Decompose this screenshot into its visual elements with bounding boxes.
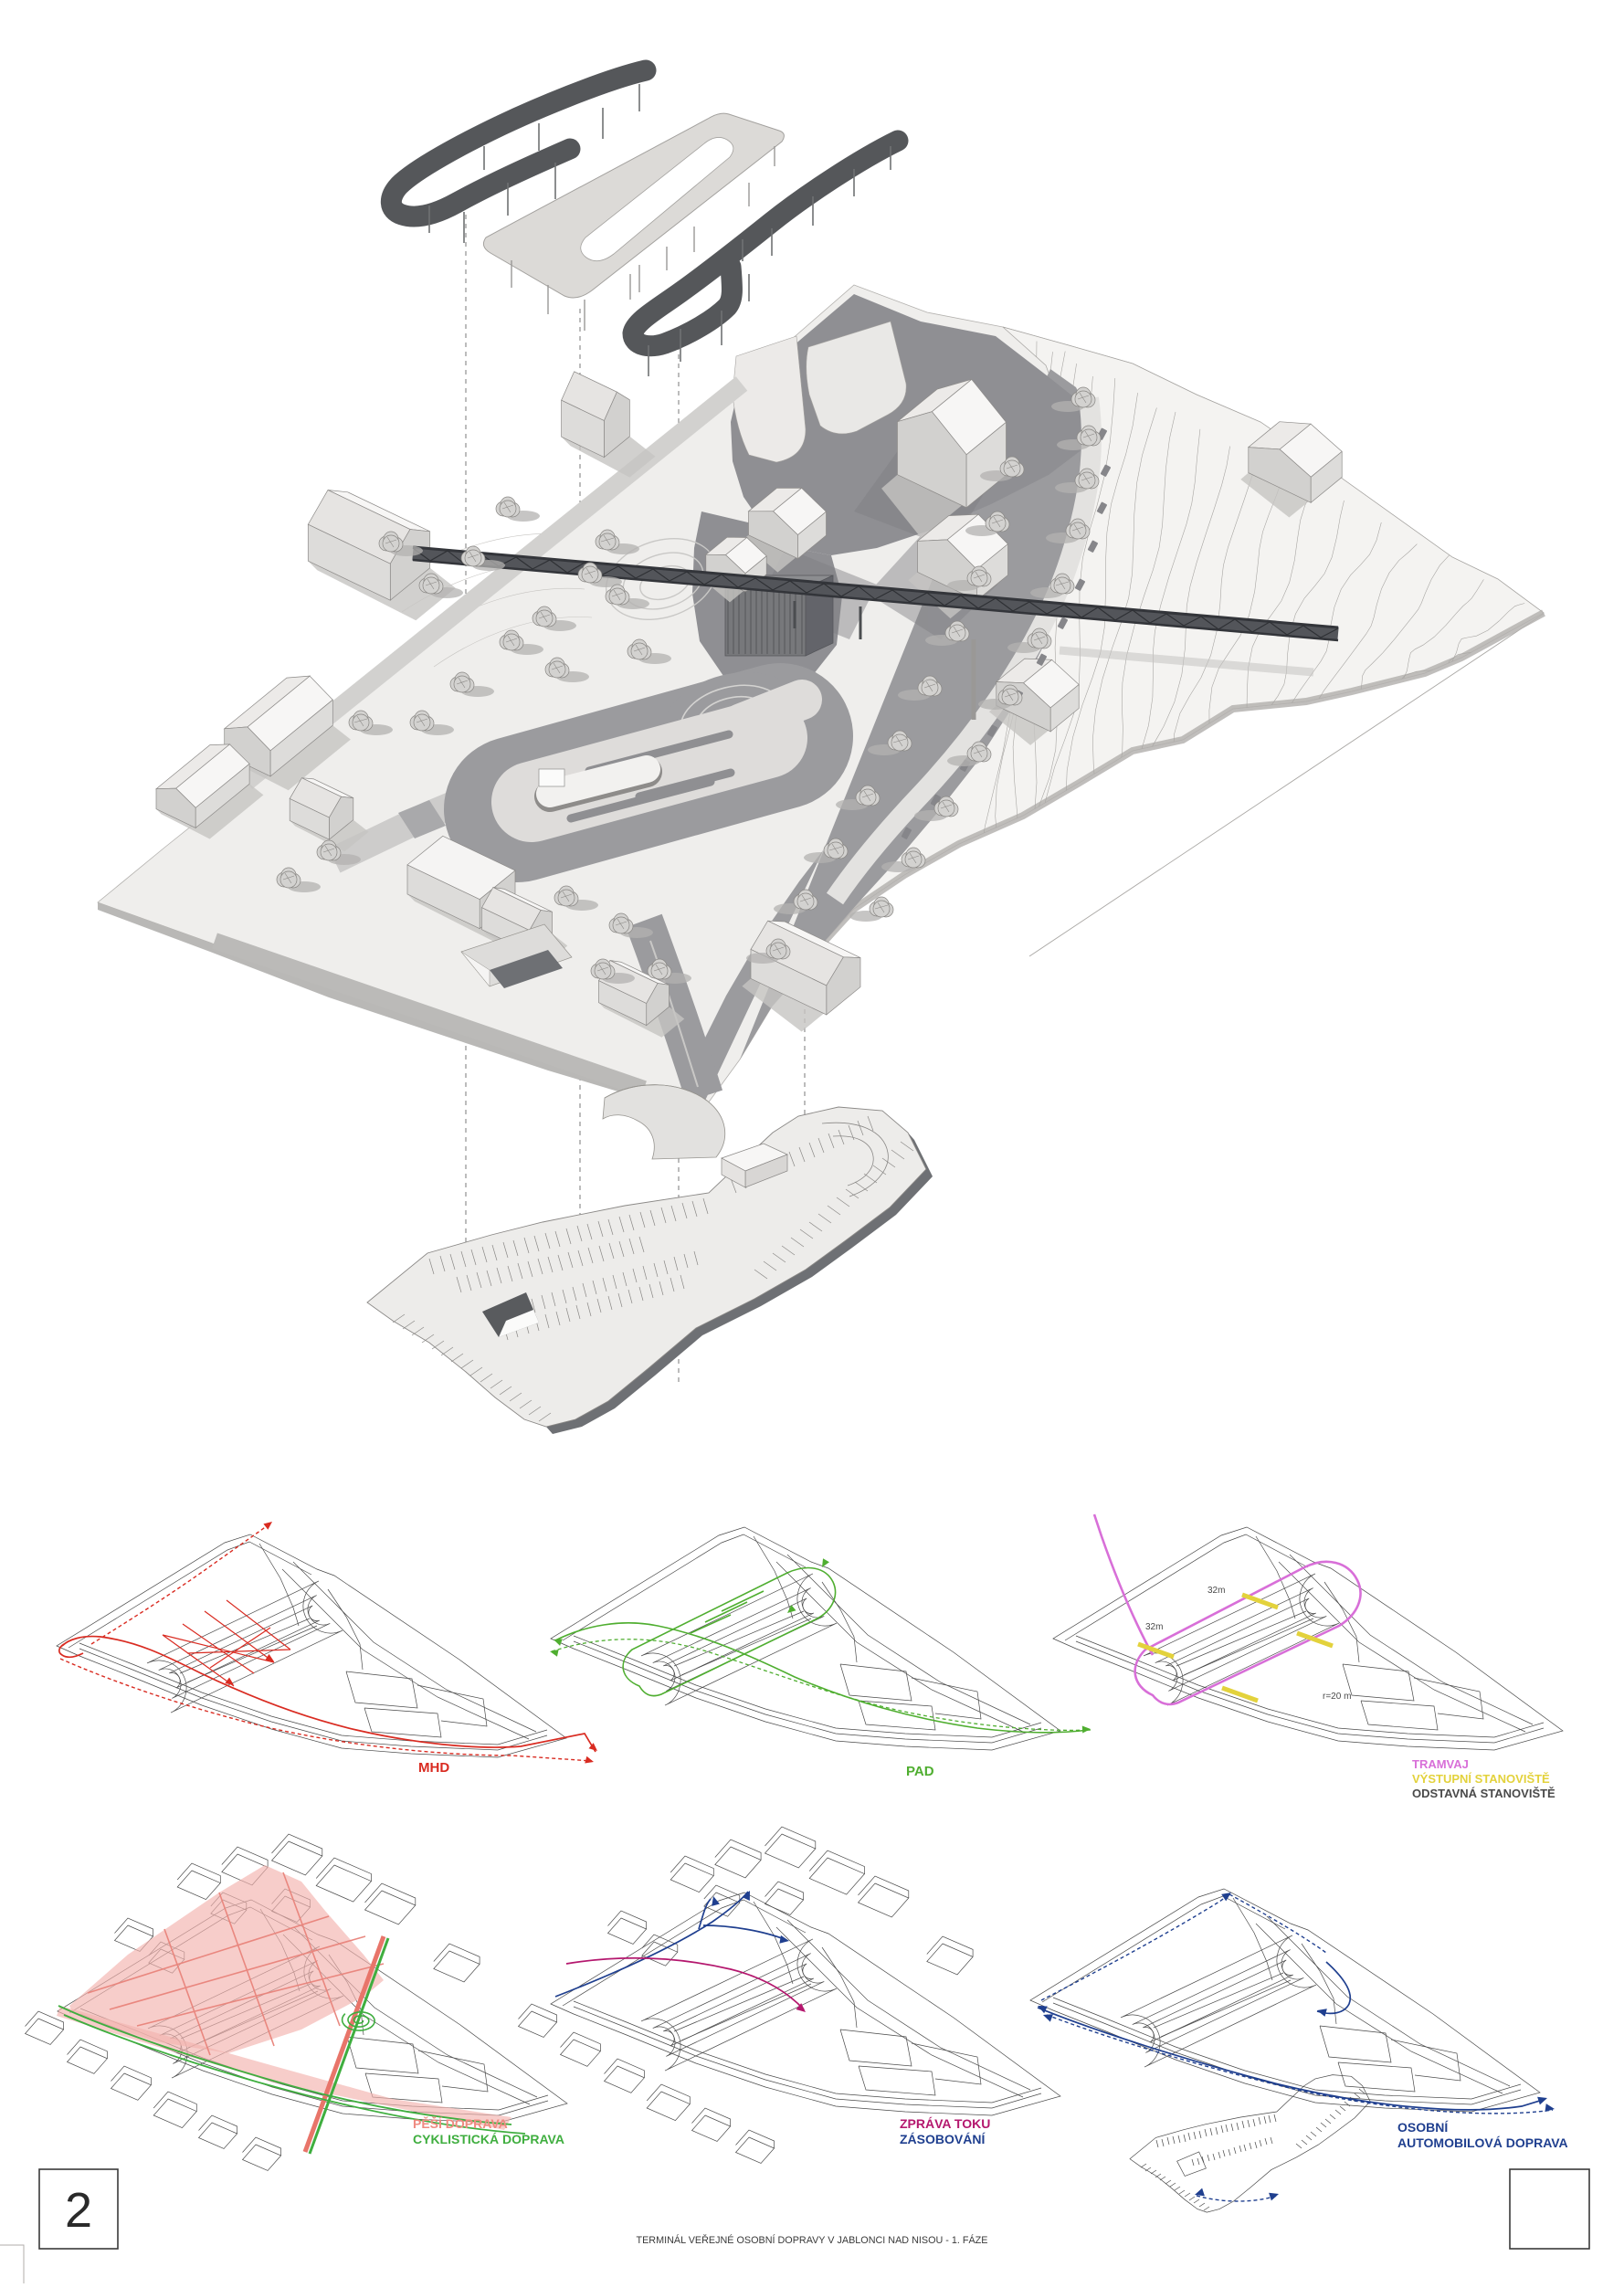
svg-text:TRAMVAJ: TRAMVAJ (1412, 1757, 1469, 1771)
svg-text:OSOBNÍ: OSOBNÍ (1397, 2120, 1449, 2135)
svg-text:PAD: PAD (906, 1764, 934, 1779)
svg-text:ZPRÁVA TOKU: ZPRÁVA TOKU (900, 2116, 990, 2131)
svg-text:ODSTAVNÁ STANOVIŠTĚ: ODSTAVNÁ STANOVIŠTĚ (1412, 1787, 1555, 1800)
svg-text:VÝSTUPNÍ STANOVIŠTĚ: VÝSTUPNÍ STANOVIŠTĚ (1412, 1772, 1550, 1786)
svg-text:32m: 32m (1145, 1622, 1163, 1632)
svg-text:2: 2 (65, 2183, 92, 2238)
svg-text:TERMINÁL VEŘEJNÉ OSOBNÍ DOPRAV: TERMINÁL VEŘEJNÉ OSOBNÍ DOPRAVY V JABLON… (637, 2234, 988, 2246)
svg-text:CYKLISTICKÁ DOPRAVA: CYKLISTICKÁ DOPRAVA (413, 2132, 564, 2146)
svg-text:MHD: MHD (418, 1760, 449, 1776)
svg-text:ZÁSOBOVÁNÍ: ZÁSOBOVÁNÍ (900, 2132, 986, 2146)
svg-text:PĚŠÍ DOPRAVA: PĚŠÍ DOPRAVA (413, 2115, 508, 2131)
svg-text:AUTOMOBILOVÁ DOPRAVA: AUTOMOBILOVÁ DOPRAVA (1397, 2135, 1568, 2150)
svg-text:r=20 m: r=20 m (1323, 1692, 1351, 1702)
svg-text:32m: 32m (1207, 1586, 1225, 1596)
